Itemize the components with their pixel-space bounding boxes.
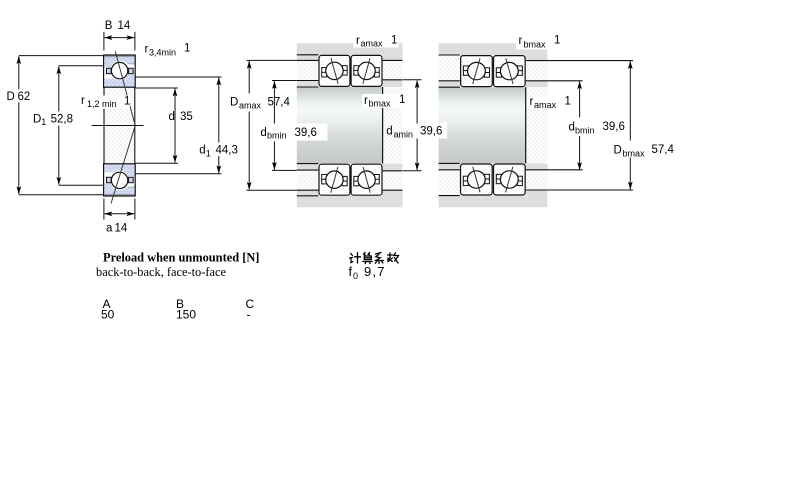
svg-text:bmax: bmax <box>524 40 547 50</box>
svg-text:57,4: 57,4 <box>652 144 675 156</box>
svg-text:d: d <box>386 126 392 138</box>
svg-text:57,4: 57,4 <box>268 97 291 109</box>
svg-text:amax: amax <box>534 100 557 110</box>
svg-text:d: d <box>569 122 575 134</box>
svg-text:62: 62 <box>18 91 31 103</box>
svg-text:39,6: 39,6 <box>295 127 317 139</box>
svg-text:50: 50 <box>101 308 115 322</box>
svg-text:1: 1 <box>554 35 560 47</box>
svg-text:D: D <box>7 91 15 103</box>
svg-text:bmin: bmin <box>575 126 595 136</box>
svg-text:D: D <box>614 145 622 157</box>
svg-text:d: d <box>260 127 266 139</box>
svg-text:9,7: 9,7 <box>364 264 386 279</box>
svg-text:B: B <box>105 20 113 32</box>
svg-text:amax: amax <box>239 101 262 111</box>
svg-text:back-to-back, face-to-face: back-to-back, face-to-face <box>96 265 227 279</box>
svg-text:3,4min: 3,4min <box>149 48 176 58</box>
svg-text:1: 1 <box>399 94 405 106</box>
svg-text:amax: amax <box>361 39 384 49</box>
svg-text:r: r <box>81 95 85 107</box>
svg-text:bmin: bmin <box>267 131 287 141</box>
svg-text:bmax: bmax <box>369 99 392 109</box>
svg-text:Preload when unmounted [N]: Preload when unmounted [N] <box>103 251 259 265</box>
svg-text:35: 35 <box>180 111 193 123</box>
svg-text:-: - <box>247 308 251 322</box>
svg-text:150: 150 <box>176 308 196 322</box>
svg-text:1,2 min: 1,2 min <box>87 99 117 109</box>
svg-text:39,6: 39,6 <box>420 126 442 138</box>
svg-text:f: f <box>349 264 353 279</box>
svg-text:amin: amin <box>394 129 414 139</box>
svg-text:44,3: 44,3 <box>216 145 238 157</box>
svg-text:14: 14 <box>115 223 128 235</box>
svg-text:r: r <box>530 96 534 108</box>
svg-text:D: D <box>33 113 41 125</box>
svg-text:1: 1 <box>124 96 130 108</box>
svg-text:D: D <box>230 97 238 109</box>
svg-text:1: 1 <box>391 35 397 47</box>
svg-text:14: 14 <box>118 20 131 32</box>
svg-text:r: r <box>364 95 368 107</box>
svg-text:39,6: 39,6 <box>603 121 625 133</box>
svg-text:d: d <box>169 111 175 123</box>
svg-text:bmax: bmax <box>623 149 646 159</box>
svg-text:r: r <box>145 44 149 56</box>
svg-text:1: 1 <box>565 96 571 108</box>
svg-text:1: 1 <box>184 43 190 55</box>
svg-text:r: r <box>519 35 523 47</box>
svg-text:0: 0 <box>353 271 358 281</box>
svg-text:d: d <box>199 145 205 157</box>
svg-text:1: 1 <box>206 148 211 158</box>
svg-text:52,8: 52,8 <box>51 113 73 125</box>
svg-text:r: r <box>356 35 360 47</box>
svg-text:a: a <box>106 223 113 235</box>
svg-text:1: 1 <box>41 117 46 127</box>
